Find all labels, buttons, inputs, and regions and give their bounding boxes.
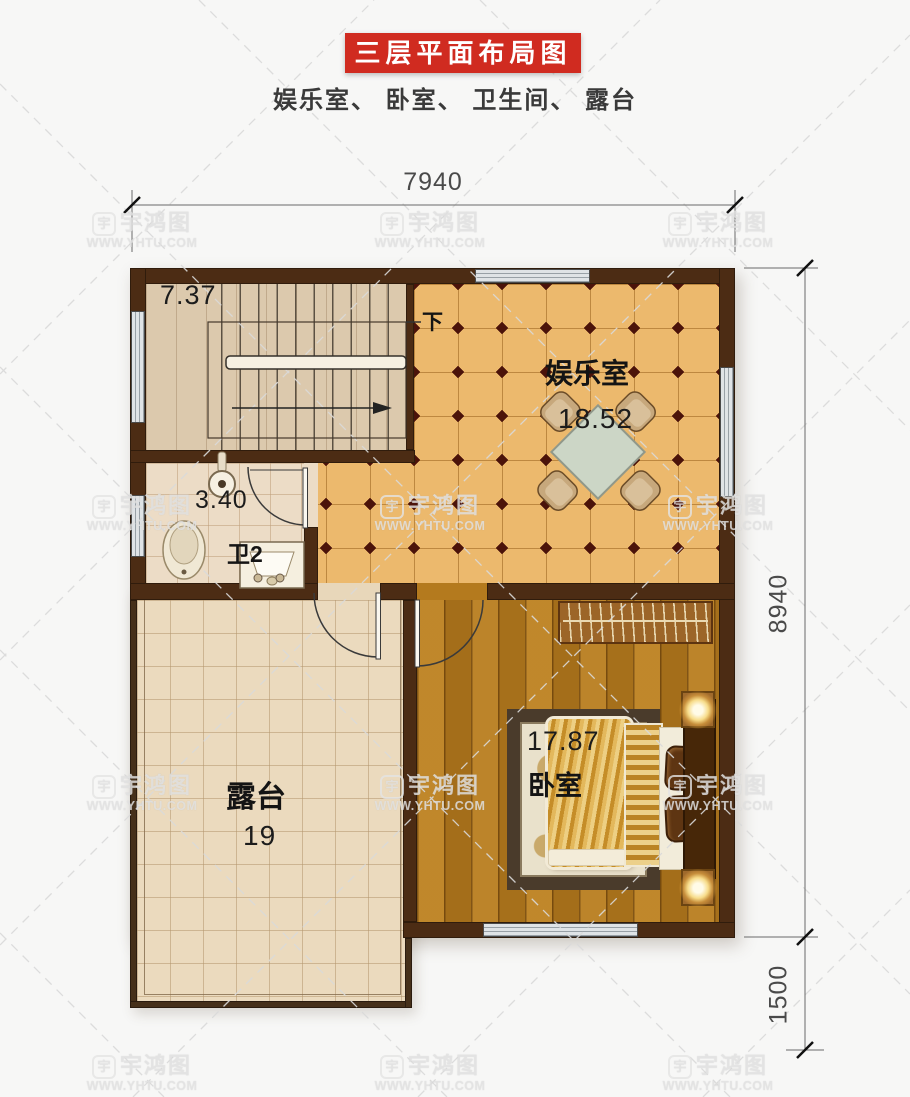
watermark-name: 宇鸿图 <box>408 1053 480 1078</box>
wall-stair-bottom <box>130 450 415 463</box>
watermark: 宇宇鸿图WWW.YHTU.COM <box>360 1053 500 1093</box>
page-subtitle: 娱乐室、 卧室、 卫生间、 露台 <box>0 80 910 115</box>
window-bedroom-bottom <box>483 923 638 937</box>
watermark-url: WWW.YHTU.COM <box>360 236 500 250</box>
entertainment-name-label: 娱乐室 <box>545 352 629 392</box>
page-title: 三层平面布局图 <box>345 33 581 73</box>
watermark-url: WWW.YHTU.COM <box>648 1079 788 1093</box>
watermark: 宇宇鸿图WWW.YHTU.COM <box>648 210 788 250</box>
watermark-logo: 宇 <box>92 775 116 799</box>
watermark-name: 宇鸿图 <box>120 1053 192 1078</box>
terrace-area-label: 19 <box>243 820 276 852</box>
window-entertainment-right <box>720 367 734 497</box>
bedroom-name-label: 卧室 <box>528 764 582 803</box>
terrace-name-label: 露台 <box>226 772 286 816</box>
watermark: 宇宇鸿图WWW.YHTU.COM <box>648 1053 788 1093</box>
bedside-lamp <box>679 869 717 907</box>
watermark-logo: 宇 <box>380 212 404 236</box>
watermark: 宇宇鸿图WWW.YHTU.COM <box>72 210 212 250</box>
watermark-name: 宇鸿图 <box>120 210 192 235</box>
window-top <box>475 269 590 283</box>
watermark-url: WWW.YHTU.COM <box>72 1079 212 1093</box>
terrace-parapet-bottom <box>130 1001 412 1008</box>
wall-mid-stub <box>380 583 417 600</box>
stair-treads <box>221 284 406 450</box>
dimension-right-lower: 1500 <box>765 940 794 1050</box>
bathroom-name-label: 卫2 <box>227 535 263 569</box>
watermark-logo: 宇 <box>92 495 116 519</box>
bedroom-area-label: 17.87 <box>527 726 600 757</box>
watermark-name: 宇鸿图 <box>696 210 768 235</box>
terrace-door-threshold <box>318 583 380 600</box>
dimension-top-width: 7940 <box>383 168 483 197</box>
stair-down-label: 下 <box>422 306 443 336</box>
wardrobe <box>558 601 713 644</box>
bedside-lamp <box>679 691 717 729</box>
terrace-parapet-right <box>405 938 412 1008</box>
watermark-name: 宇鸿图 <box>408 210 480 235</box>
bed-runner <box>626 725 661 865</box>
bathroom-floor <box>146 463 318 600</box>
bed-sheet-fold <box>548 849 631 866</box>
floor-plan-page: 三层平面布局图 娱乐室、 卧室、 卫生间、 露台 <box>0 0 910 1097</box>
entertainment-area-label: 18.52 <box>558 403 633 435</box>
dimension-right-height: 8940 <box>765 549 794 659</box>
terrace-parapet-left <box>130 600 137 1008</box>
watermark-url: WWW.YHTU.COM <box>72 236 212 250</box>
wall-stair-right <box>406 284 414 450</box>
watermark-name: 宇鸿图 <box>696 1053 768 1078</box>
entertainment-hallway-floor <box>318 463 414 583</box>
bathroom-area-label: 3.40 <box>195 486 248 515</box>
window-stair-left <box>131 311 145 423</box>
watermark-logo: 宇 <box>668 1055 692 1079</box>
window-bathroom-left <box>131 495 145 557</box>
wall-bedroom-left <box>403 600 417 922</box>
watermark-url: WWW.YHTU.COM <box>648 236 788 250</box>
watermark-logo: 宇 <box>92 1055 116 1079</box>
watermark-url: WWW.YHTU.COM <box>360 1079 500 1093</box>
bedroom-door-threshold <box>417 583 487 600</box>
bathroom-door-threshold <box>304 463 318 527</box>
watermark-logo: 宇 <box>92 212 116 236</box>
stairwell-area-label: 7.37 <box>160 280 217 311</box>
wall-mid-left <box>130 583 318 600</box>
watermark: 宇宇鸿图WWW.YHTU.COM <box>360 210 500 250</box>
wall-mid-right <box>487 583 735 600</box>
watermark: 宇宇鸿图WWW.YHTU.COM <box>72 1053 212 1093</box>
watermark-logo: 宇 <box>668 212 692 236</box>
watermark-logo: 宇 <box>380 1055 404 1079</box>
wall-top <box>130 268 735 284</box>
